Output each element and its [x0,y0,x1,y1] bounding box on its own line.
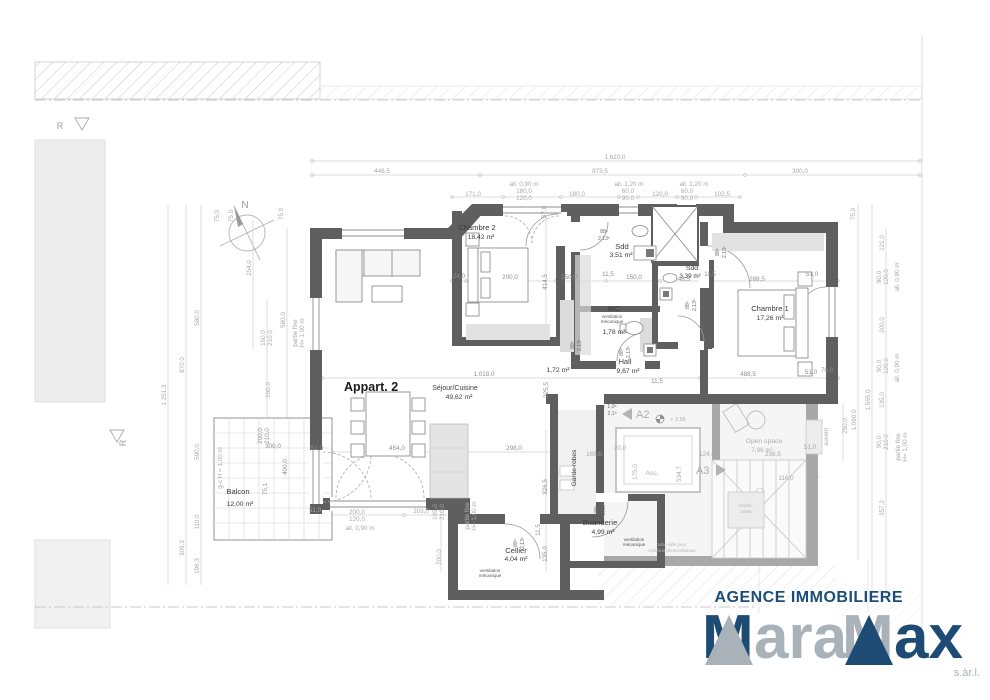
svg-text:g-c H = 1,00 m: g-c H = 1,00 m [217,447,224,488]
svg-text:357,2: 357,2 [879,500,886,516]
north-label: N [241,200,248,211]
svg-text:2,13⁵: 2,13⁵ [577,339,583,351]
area-balcon: 12,00 m² [227,501,255,508]
dim: 1.620,0 [604,154,626,161]
kitchen-counter [430,424,468,498]
floor-plan-page: N R R Appart. 2 A2 A3 + 2,95 Chambre 2 1… [0,0,990,700]
svg-text:1.251,3: 1.251,3 [161,384,168,406]
svg-text:200,0: 200,0 [349,509,365,516]
room-wc: WC [608,304,621,313]
note-photovoltaic-1: tube vide pour [658,542,687,547]
svg-text:120,0: 120,0 [883,269,890,285]
label-auvent: auvent [824,428,830,446]
svg-text:51,0: 51,0 [806,271,819,278]
svg-text:236,5: 236,5 [765,451,781,458]
svg-text:11,5: 11,5 [651,378,663,385]
svg-text:51,0: 51,0 [804,444,817,451]
svg-text:all. 0,90 m: all. 0,90 m [894,353,901,382]
svg-text:306,3: 306,3 [179,540,186,556]
svg-text:88⁵: 88⁵ [619,348,625,356]
r-marker-1: R [57,121,64,131]
room-sdd1: Sdd [615,242,629,251]
svg-text:250,0: 250,0 [561,274,577,281]
svg-text:all. 0,90 m: all. 0,90 m [509,181,538,188]
note-wc-2: mécanique [601,319,624,324]
shower-shaft [652,206,698,262]
svg-text:150,0: 150,0 [626,274,642,281]
svg-text:298,0: 298,0 [506,445,522,452]
svg-text:288,5: 288,5 [749,276,765,283]
sill-chambre1 [712,233,824,251]
svg-text:2,13⁵: 2,13⁵ [692,299,698,311]
bed-chambre2 [466,233,528,316]
svg-text:120,0: 120,0 [516,195,532,202]
area-buanderie: 4,99 m² [591,529,615,536]
brand-block: AGENCE IMMOBILIERE M ara M ax s.àr.l. [670,585,990,700]
svg-text:400,0: 400,0 [282,459,289,475]
svg-text:H= 1,00 m: H= 1,00 m [299,318,306,347]
svg-text:2,13⁵: 2,13⁵ [626,346,632,358]
svg-text:20,0: 20,0 [614,445,627,452]
svg-text:534,7: 534,7 [676,466,683,482]
room-balcon: Balcon [226,487,249,496]
svg-text:160,0: 160,0 [260,330,267,346]
svg-text:110,0: 110,0 [194,514,201,530]
svg-text:120,0: 120,0 [652,191,668,198]
svg-text:446,5: 446,5 [374,168,390,175]
marker-a3: A3 [696,465,709,477]
area-sdd1: 3,51 m² [609,252,633,259]
svg-text:H= 1,00 m: H= 1,00 m [902,432,909,461]
svg-text:51,0: 51,0 [311,445,324,452]
svg-text:60,0: 60,0 [622,188,635,195]
svg-text:210,0: 210,0 [267,330,274,346]
svg-text:70,0: 70,0 [821,367,834,374]
logo-mountain-icon-2 [845,615,893,665]
svg-text:165,0: 165,0 [586,451,602,458]
svg-text:2,13⁵: 2,13⁵ [722,246,728,258]
svg-text:135,0: 135,0 [879,392,886,408]
svg-text:2,1³: 2,1³ [608,411,617,417]
svg-text:160,0: 160,0 [265,382,272,398]
svg-text:171,0: 171,0 [465,191,481,198]
svg-text:1.090,0: 1.090,0 [851,409,858,431]
logo-letters-ax: ax [894,603,963,673]
svg-text:partie fixe: partie fixe [292,319,299,347]
svg-text:11,5: 11,5 [704,271,716,278]
svg-text:873,5: 873,5 [592,168,608,175]
room-garde2a: Garde- [739,503,754,508]
svg-text:102,5: 102,5 [714,191,730,198]
area-chambre2: 18,42 m² [468,234,496,241]
svg-text:116,0: 116,0 [778,475,794,482]
svg-text:88⁵: 88⁵ [594,505,600,513]
room-sdd2: Sdd [686,265,698,272]
svg-text:124,0: 124,0 [699,451,715,458]
svg-text:1.018,0: 1.018,0 [473,371,495,378]
logo-suffix: s.àr.l. [954,667,980,679]
svg-text:60,0: 60,0 [681,188,694,195]
svg-text:1.565,0: 1.565,0 [865,389,872,411]
svg-text:all. 0,90 m: all. 0,90 m [345,525,374,532]
svg-text:580,0: 580,0 [280,312,287,328]
door-ann: 88⁵ [600,229,608,235]
svg-text:48,5: 48,5 [678,276,691,283]
note-cellier-2: mécanique [479,573,502,578]
logo-mountain-icon-1 [705,615,753,665]
svg-text:75,0: 75,0 [228,209,235,222]
level-marker: + 2,95 [670,417,685,423]
note-photovoltaic-2: système photovoltaique [648,548,696,553]
elevator-shaft [616,428,700,492]
room-chambre2: Chambre 2 [458,223,496,232]
svg-text:180,0: 180,0 [569,191,585,198]
svg-text:partie fixe: partie fixe [895,433,902,461]
room-chambre1: Chambre 1 [751,304,789,313]
svg-text:414,5: 414,5 [542,274,549,290]
room-asc: Asc. [645,470,658,477]
area-wc: 1,78 m² [602,329,626,336]
r-triangle-1 [75,118,89,130]
svg-text:250,0: 250,0 [842,418,849,434]
svg-text:180,0: 180,0 [516,188,532,195]
sink-sdd2 [663,274,677,283]
svg-text:175,0: 175,0 [632,464,639,480]
area-hall: 9,67 m² [616,368,640,375]
svg-text:200,0: 200,0 [502,274,518,281]
svg-text:2,13⁵: 2,13⁵ [520,537,526,549]
logo-letters-ara: ara [754,603,847,673]
room-open-space: Open space [746,438,783,445]
room-garde2b: robes [740,509,752,514]
svg-text:75,0: 75,0 [214,209,221,222]
svg-text:all. 1,20 m: all. 1,20 m [679,181,708,188]
svg-text:454,0: 454,0 [389,445,405,452]
svg-text:870,0: 870,0 [179,357,186,373]
svg-text:75,1: 75,1 [262,482,269,495]
svg-text:88⁵: 88⁵ [715,248,721,256]
svg-text:200,0: 200,0 [879,317,886,333]
svg-text:210,0: 210,0 [264,428,271,444]
svg-text:88⁵: 88⁵ [685,301,691,309]
svg-text:120,0: 120,0 [349,516,365,523]
area-small-room: 1,72 m² [546,367,570,374]
area-sejour: 49,62 m² [446,394,474,401]
svg-text:all. 1,20 m: all. 1,20 m [614,181,643,188]
svg-text:90,0: 90,0 [681,195,694,202]
sofa [336,250,420,302]
svg-text:326,5: 326,5 [542,479,549,495]
svg-text:75,0: 75,0 [278,207,285,220]
r-marker-2: R [118,439,128,446]
svg-text:580,0: 580,0 [194,310,201,326]
svg-text:90,0: 90,0 [622,195,635,202]
svg-text:24,0: 24,0 [453,273,466,280]
svg-text:2,13⁵: 2,13⁵ [598,236,610,242]
dresser-chambre2 [466,324,550,340]
svg-text:88⁵: 88⁵ [513,539,519,547]
svg-text:135,0: 135,0 [542,546,549,562]
dining-table [351,392,425,457]
room-garde-robes: Garde-robes [571,449,578,486]
bed-chambre1 [738,272,812,376]
svg-text:590,0: 590,0 [194,444,201,460]
svg-text:200,0: 200,0 [436,549,443,565]
svg-text:200,0: 200,0 [257,428,264,444]
area-cellier: 4,04 m² [504,556,528,563]
svg-text:75,0: 75,0 [850,207,857,220]
svg-text:90,0: 90,0 [876,435,883,448]
note-buanderie-2: mécanique [623,542,646,547]
svg-text:51,0: 51,0 [309,507,322,514]
svg-text:210,0: 210,0 [883,434,890,450]
svg-text:H= 1,00 m: H= 1,00 m [471,501,478,530]
svg-text:254,0: 254,0 [246,260,253,276]
apartment-title: Appart. 2 [344,380,398,394]
svg-text:488,5: 488,5 [740,371,756,378]
svg-text:203,0: 203,0 [413,508,429,515]
svg-text:120,0: 120,0 [883,358,890,374]
svg-text:2,13⁵: 2,13⁵ [601,503,607,515]
room-buanderie: Buanderie [583,518,618,527]
svg-text:partie fixe: partie fixe [464,502,471,530]
level-marker-symbol [656,415,664,423]
svg-text:90,0: 90,0 [876,270,883,283]
svg-text:1,0⁵: 1,0⁵ [607,404,616,410]
svg-text:57,0: 57,0 [541,205,548,218]
svg-text:90,0: 90,0 [876,359,883,372]
area-chambre1: 17,26 m² [757,315,785,322]
svg-text:11,5: 11,5 [535,524,542,536]
marker-a2: A2 [636,409,649,421]
svg-text:105,0: 105,0 [432,504,439,520]
svg-text:88⁵: 88⁵ [570,341,576,349]
sink-sdd1 [632,226,648,237]
svg-text:300,0: 300,0 [792,168,808,175]
svg-text:11,5: 11,5 [602,271,614,278]
svg-text:121,0: 121,0 [879,235,886,251]
svg-text:210,0: 210,0 [439,504,446,520]
svg-text:225,5: 225,5 [543,382,550,398]
maramax-logo: M ara M ax s.àr.l. [702,603,984,681]
svg-text:196,3: 196,3 [194,558,201,574]
svg-text:51,0: 51,0 [805,369,818,376]
svg-text:all. 0,90 m: all. 0,90 m [894,262,901,291]
room-sejour: Séjour/Cuisine [432,385,478,392]
